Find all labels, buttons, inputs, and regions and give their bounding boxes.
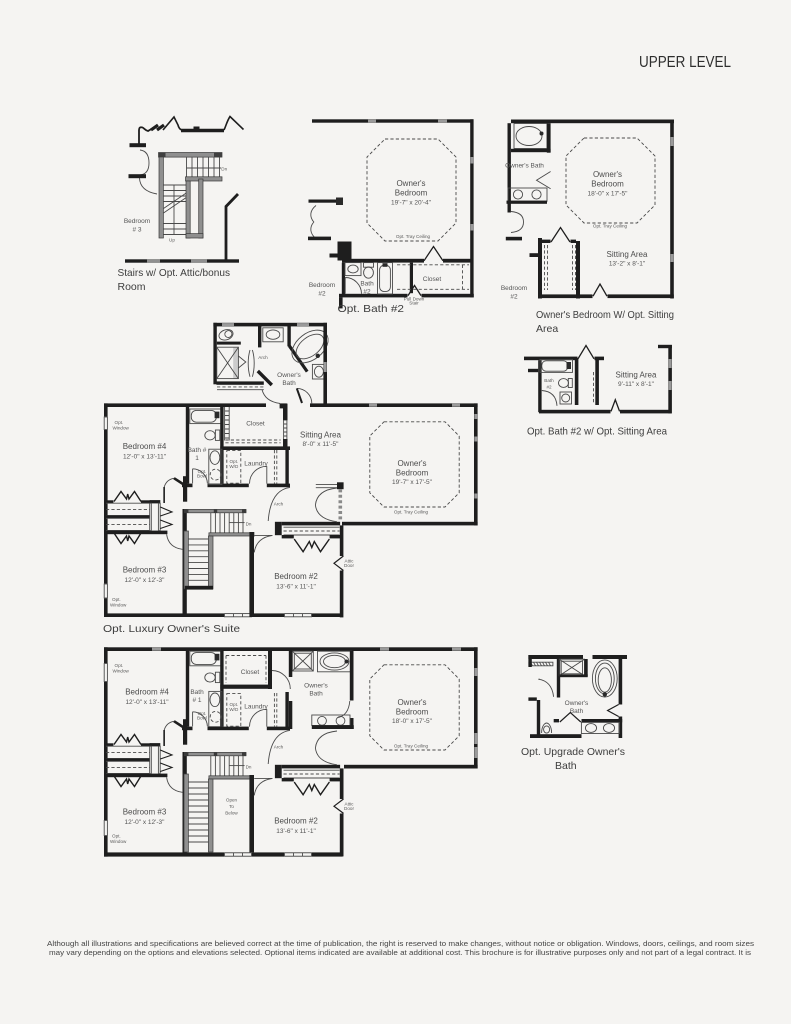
svg-text:Below: Below	[225, 811, 238, 816]
svg-text:Sitting Area: Sitting Area	[616, 371, 657, 380]
svg-text:Opt.: Opt.	[112, 597, 121, 602]
svg-text:Closet: Closet	[246, 421, 265, 428]
svg-text:Bath: Bath	[190, 689, 204, 696]
svg-text:1: 1	[195, 455, 199, 462]
svg-text:12'-0" x 13'-11": 12'-0" x 13'-11"	[123, 454, 167, 461]
svg-text:12'-0" x 12'-3": 12'-0" x 12'-3"	[125, 819, 166, 826]
svg-text:Owner's: Owner's	[397, 459, 426, 468]
svg-text:18'-0" x 17'-5": 18'-0" x 17'-5"	[392, 718, 433, 725]
svg-text:Door: Door	[344, 806, 354, 811]
svg-text:13'-6" x 11'-1": 13'-6" x 11'-1"	[276, 584, 316, 591]
svg-text:Bedroom #3: Bedroom #3	[123, 566, 167, 575]
svg-text:Up: Up	[169, 238, 175, 243]
svg-text:Arch: Arch	[258, 355, 268, 360]
svg-text:Dn: Dn	[221, 167, 227, 172]
svg-text:W/D: W/D	[229, 464, 239, 469]
svg-text:Owner's: Owner's	[593, 170, 622, 179]
svg-text:Stair: Stair	[409, 301, 419, 306]
svg-text:W/D: W/D	[229, 707, 239, 712]
svg-text:Bath: Bath	[555, 760, 577, 772]
svg-text:Opt. Bath #2 w/ Opt. Sitting A: Opt. Bath #2 w/ Opt. Sitting Area	[527, 426, 667, 438]
svg-text:#2: #2	[363, 289, 371, 296]
svg-text:Opt. Tray Ceiling: Opt. Tray Ceiling	[593, 224, 628, 229]
svg-text:12'-0" x 13'-11": 12'-0" x 13'-11"	[125, 699, 169, 706]
svg-text:Owner's Bedroom W/ Opt. Sittin: Owner's Bedroom W/ Opt. Sitting	[536, 309, 674, 321]
svg-text:Opt.: Opt.	[115, 663, 124, 668]
svg-text:Bowl: Bowl	[197, 474, 207, 479]
svg-text:Owner's: Owner's	[396, 179, 425, 188]
svg-text:Bedroom #2: Bedroom #2	[274, 572, 318, 581]
svg-text:Bedroom: Bedroom	[309, 282, 335, 289]
svg-text:Bedroom #3: Bedroom #3	[123, 808, 167, 817]
svg-text:9'-11" x 8'-1": 9'-11" x 8'-1"	[618, 381, 655, 388]
svg-text:Window: Window	[110, 603, 127, 608]
svg-text:13'-6" x 11'-1": 13'-6" x 11'-1"	[276, 828, 316, 835]
svg-text:Owner's Bath: Owner's Bath	[505, 163, 544, 170]
svg-text:# 3: # 3	[132, 227, 141, 234]
svg-text:Stairs w/ Opt. Attic/bonus: Stairs w/ Opt. Attic/bonus	[118, 267, 231, 279]
svg-text:Owner's: Owner's	[565, 700, 589, 707]
svg-text:8'-0" x 11'-5": 8'-0" x 11'-5"	[303, 441, 340, 448]
svg-text:Sitting Area: Sitting Area	[300, 431, 341, 440]
svg-text:UPPER LEVEL: UPPER LEVEL	[639, 54, 731, 71]
svg-text:Opt. Luxury Owner's Suite: Opt. Luxury Owner's Suite	[103, 623, 240, 635]
svg-text:Closet: Closet	[423, 276, 442, 283]
svg-text:Bedroom: Bedroom	[396, 708, 429, 717]
svg-text:may vary depending on the opti: may vary depending on the options and el…	[49, 948, 751, 957]
svg-text:Bedroom: Bedroom	[501, 285, 527, 292]
svg-text:13'-2" x 8'-1": 13'-2" x 8'-1"	[609, 261, 646, 268]
svg-text:Bedroom #4: Bedroom #4	[125, 688, 169, 697]
svg-text:Sitting Area: Sitting Area	[607, 250, 648, 259]
svg-text:Bath #: Bath #	[188, 447, 207, 454]
svg-text:Opt. Upgrade Owner's: Opt. Upgrade Owner's	[521, 746, 625, 758]
svg-text:Area: Area	[536, 323, 558, 335]
svg-text:Bedroom: Bedroom	[395, 189, 428, 198]
svg-text:Opt. Tray Ceiling: Opt. Tray Ceiling	[394, 744, 429, 749]
svg-text:To: To	[229, 804, 234, 809]
svg-text:#2: #2	[510, 294, 518, 301]
svg-text:Dn: Dn	[246, 764, 252, 769]
svg-text:Bath: Bath	[282, 380, 296, 387]
svg-text:# 1: # 1	[192, 697, 201, 704]
svg-text:Window: Window	[110, 839, 127, 844]
svg-text:Window: Window	[113, 426, 130, 431]
svg-text:Bedroom #4: Bedroom #4	[123, 442, 167, 451]
svg-text:Arch: Arch	[274, 745, 284, 750]
svg-text:19'-7" x 20'-4": 19'-7" x 20'-4"	[391, 200, 432, 207]
svg-text:Closet: Closet	[241, 669, 260, 676]
svg-text:Arch: Arch	[274, 502, 284, 507]
svg-text:Bath: Bath	[360, 281, 374, 288]
svg-text:Owner's: Owner's	[277, 372, 301, 379]
svg-text:Bath: Bath	[544, 378, 554, 383]
svg-text:#2: #2	[546, 385, 552, 390]
svg-text:12'-0" x 12'-3": 12'-0" x 12'-3"	[125, 577, 166, 584]
svg-text:Owner's: Owner's	[304, 683, 328, 690]
svg-text:Room: Room	[118, 281, 146, 293]
svg-text:Bedroom: Bedroom	[591, 180, 624, 189]
svg-text:Owner's: Owner's	[397, 698, 426, 707]
svg-text:Although all illustrations and: Although all illustrations and specifica…	[47, 939, 754, 948]
svg-text:Opt.: Opt.	[112, 834, 121, 839]
svg-text:Open: Open	[226, 798, 238, 803]
svg-text:#2: #2	[318, 291, 326, 298]
svg-text:Bath: Bath	[309, 691, 323, 698]
svg-text:19'-7" x 17'-5": 19'-7" x 17'-5"	[392, 479, 433, 486]
svg-text:Window: Window	[113, 669, 130, 674]
svg-text:Opt.: Opt.	[115, 420, 124, 425]
svg-text:Opt. Bath #2: Opt. Bath #2	[338, 303, 405, 315]
svg-text:Opt. Tray Ceiling: Opt. Tray Ceiling	[394, 510, 429, 515]
svg-text:Bedroom: Bedroom	[124, 218, 150, 225]
svg-text:Bedroom #2: Bedroom #2	[274, 817, 318, 826]
svg-text:Opt. Tray Ceiling: Opt. Tray Ceiling	[396, 234, 431, 239]
svg-text:18'-0" x 17'-5": 18'-0" x 17'-5"	[588, 191, 629, 198]
svg-text:Bedroom: Bedroom	[396, 469, 429, 478]
svg-text:Dn: Dn	[246, 521, 252, 526]
svg-text:Door: Door	[344, 563, 354, 568]
